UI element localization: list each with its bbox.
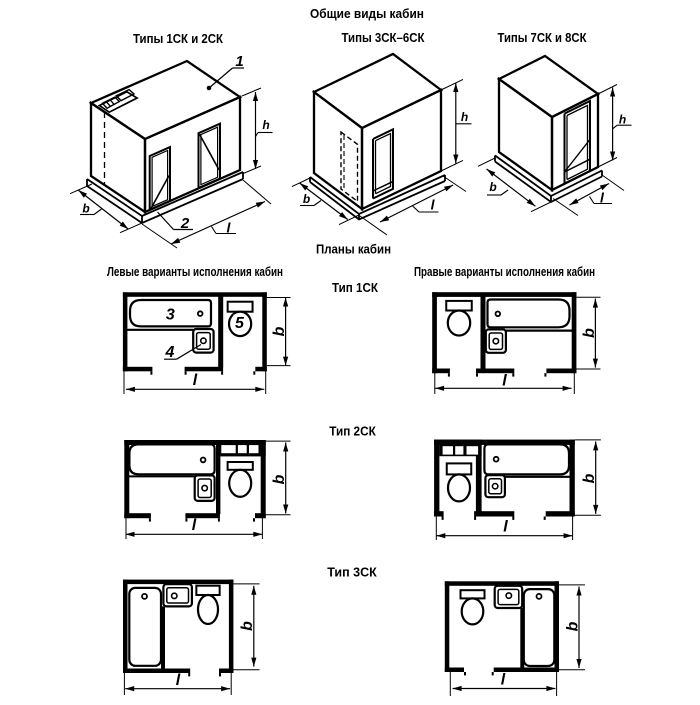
svg-text:Тип 2СК: Тип 2СК [329, 424, 376, 439]
svg-text:Левые варианты исполнения каби: Левые варианты исполнения кабин [107, 264, 283, 279]
svg-text:h: h [619, 113, 626, 127]
svg-text:b: b [581, 328, 598, 338]
svg-text:Типы 1СК и 2СК: Типы 1СК и 2СК [133, 31, 223, 46]
svg-text:l: l [503, 519, 508, 536]
svg-text:b: b [271, 326, 288, 336]
svg-text:l: l [176, 672, 181, 689]
svg-text:b: b [564, 621, 581, 631]
svg-text:Общие виды кабин: Общие виды кабин [310, 6, 424, 21]
svg-text:h: h [461, 110, 468, 124]
svg-text:4: 4 [165, 344, 175, 361]
svg-text:l: l [502, 373, 507, 390]
svg-text:Планы кабин: Планы кабин [316, 242, 391, 257]
svg-text:5: 5 [235, 315, 245, 332]
svg-text:1: 1 [235, 53, 243, 70]
svg-text:Правые варианты исполнения каб: Правые варианты исполнения кабин [414, 264, 595, 279]
svg-text:b: b [239, 621, 256, 631]
svg-text:l: l [501, 672, 506, 689]
svg-text:b: b [82, 202, 89, 216]
svg-text:b: b [489, 180, 496, 194]
svg-text:l: l [192, 517, 197, 534]
svg-text:l: l [193, 372, 198, 389]
svg-text:Типы 7СК и 8СК: Типы 7СК и 8СК [498, 30, 587, 45]
svg-text:2: 2 [180, 215, 190, 232]
svg-text:h: h [262, 118, 269, 132]
svg-text:b: b [581, 473, 598, 483]
svg-text:3: 3 [166, 307, 175, 324]
svg-text:Тип 1СК: Тип 1СК [332, 280, 378, 295]
svg-text:b: b [271, 474, 288, 484]
svg-text:Тип 3СК: Тип 3СК [327, 565, 377, 580]
svg-text:b: b [303, 192, 310, 206]
svg-text:Типы 3СК–6СК: Типы 3СК–6СК [342, 30, 425, 45]
